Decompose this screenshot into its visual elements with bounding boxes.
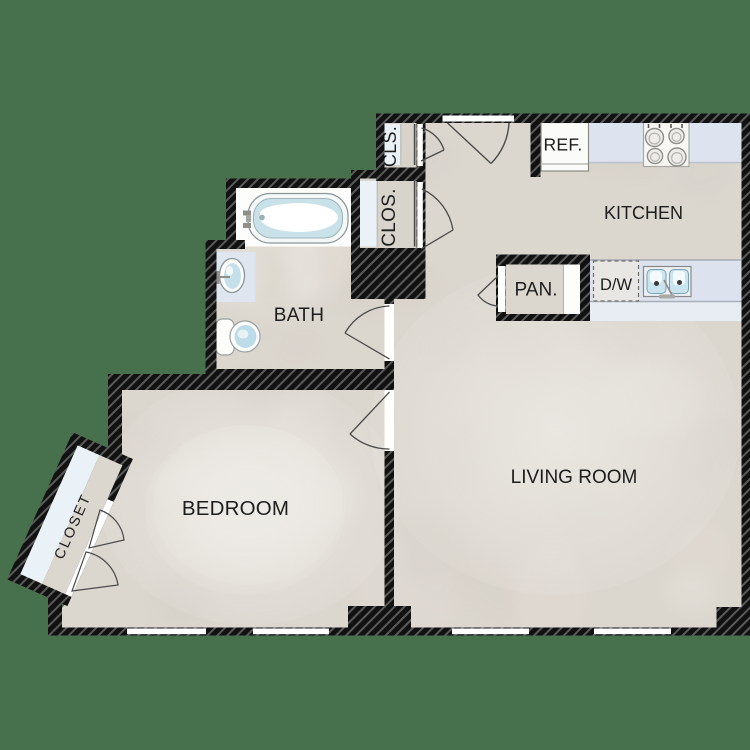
svg-text:KITCHEN: KITCHEN — [604, 203, 683, 223]
svg-text:CLOS.: CLOS. — [379, 188, 400, 247]
svg-text:PAN.: PAN. — [515, 280, 558, 301]
svg-text:REF.: REF. — [543, 135, 582, 155]
svg-text:BATH: BATH — [274, 305, 324, 326]
svg-text:LIVING ROOM: LIVING ROOM — [511, 467, 638, 488]
svg-text:D/W: D/W — [600, 276, 633, 294]
svg-text:BEDROOM: BEDROOM — [182, 497, 289, 520]
